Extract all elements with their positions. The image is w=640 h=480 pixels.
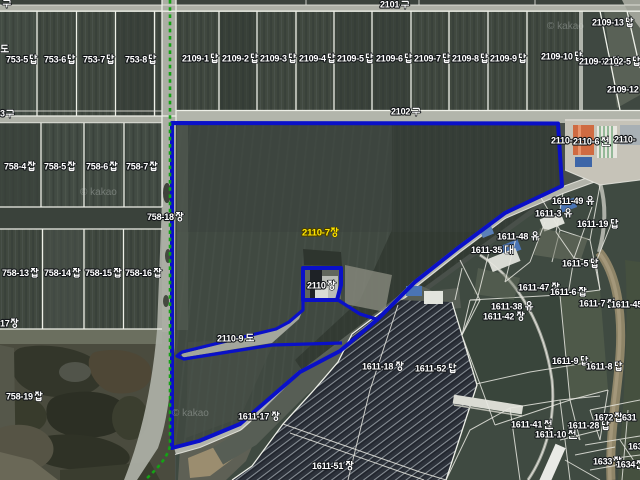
svg-text:1611-19: 1611-19 [577, 219, 608, 229]
svg-text:2109-3: 2109-3 [260, 53, 287, 63]
svg-text:2110: 2110 [307, 280, 326, 290]
svg-text:758-14: 758-14 [44, 268, 71, 278]
svg-text:1611-5: 1611-5 [562, 258, 589, 268]
svg-text:2109-8: 2109-8 [452, 53, 479, 63]
svg-text:1611-47: 1611-47 [518, 282, 549, 292]
svg-text:1611-42: 1611-42 [483, 311, 514, 321]
svg-text:2109-1: 2109-1 [182, 53, 209, 63]
svg-text:2109-7: 2109-7 [414, 53, 441, 63]
svg-text:2110-7: 2110-7 [302, 227, 330, 238]
svg-text:2110-6: 2110-6 [573, 136, 600, 146]
svg-text:1611-3: 1611-3 [535, 208, 562, 218]
svg-text:2109-5: 2109-5 [337, 53, 364, 63]
svg-text:758-4: 758-4 [4, 161, 26, 171]
svg-text:1611-17: 1611-17 [238, 411, 269, 421]
svg-text:758-15: 758-15 [85, 268, 112, 278]
svg-text:758-13: 758-13 [2, 268, 29, 278]
svg-text:17: 17 [0, 318, 10, 328]
svg-text:1611-7: 1611-7 [579, 298, 606, 308]
svg-text:1634: 1634 [616, 459, 635, 469]
svg-text:3: 3 [0, 108, 5, 118]
svg-text:1672: 1672 [594, 412, 613, 422]
svg-text:758-19: 758-19 [6, 391, 33, 401]
svg-text:1611-48: 1611-48 [497, 231, 528, 241]
svg-text:2110-9: 2110-9 [217, 333, 244, 343]
svg-text:1633: 1633 [593, 456, 612, 466]
svg-text:1611-6: 1611-6 [550, 287, 577, 297]
svg-text:1611-18: 1611-18 [362, 361, 393, 371]
svg-text:753-8: 753-8 [125, 54, 147, 64]
svg-text:1611-38: 1611-38 [491, 301, 522, 311]
svg-text:© kakao: © kakao [547, 21, 584, 32]
svg-text:753-7: 753-7 [83, 54, 105, 64]
svg-text:1611-45: 1611-45 [611, 299, 640, 309]
svg-text:758-18: 758-18 [147, 212, 174, 222]
svg-text:1611-51: 1611-51 [312, 461, 343, 471]
svg-text:© kakao: © kakao [80, 187, 117, 198]
svg-text:163: 163 [628, 441, 640, 451]
svg-text:© kakao: © kakao [172, 408, 209, 419]
svg-text:758-6: 758-6 [86, 161, 108, 171]
svg-text:2109-9: 2109-9 [490, 53, 517, 63]
svg-text:1611-41: 1611-41 [511, 419, 542, 429]
svg-text:1611-49: 1611-49 [552, 196, 583, 206]
svg-text:2102-5: 2102-5 [604, 56, 631, 66]
svg-text:2109-6: 2109-6 [376, 53, 403, 63]
svg-text:2110-: 2110- [551, 135, 573, 145]
svg-text:2109-2: 2109-2 [222, 53, 249, 63]
svg-text:753-5: 753-5 [6, 54, 28, 64]
svg-text:631: 631 [622, 412, 637, 422]
svg-text:758-7: 758-7 [126, 161, 148, 171]
svg-text:2109-10: 2109-10 [541, 51, 573, 61]
svg-text:2101: 2101 [380, 0, 399, 9]
svg-text:758-16: 758-16 [125, 268, 152, 278]
svg-text:758-5: 758-5 [44, 161, 66, 171]
svg-text:1611-10: 1611-10 [535, 429, 566, 439]
svg-text:1611-9: 1611-9 [552, 356, 579, 366]
svg-text:2109-12: 2109-12 [607, 84, 639, 94]
svg-text:2110-: 2110- [614, 134, 636, 144]
svg-text:2109-13: 2109-13 [592, 17, 624, 27]
svg-text:1611-52: 1611-52 [415, 363, 446, 373]
svg-text:1611-8: 1611-8 [586, 361, 613, 371]
svg-text:2102: 2102 [391, 106, 410, 116]
svg-text:1611-35: 1611-35 [471, 245, 502, 255]
svg-text:2109-4: 2109-4 [299, 53, 326, 63]
svg-text:753-6: 753-6 [44, 54, 66, 64]
